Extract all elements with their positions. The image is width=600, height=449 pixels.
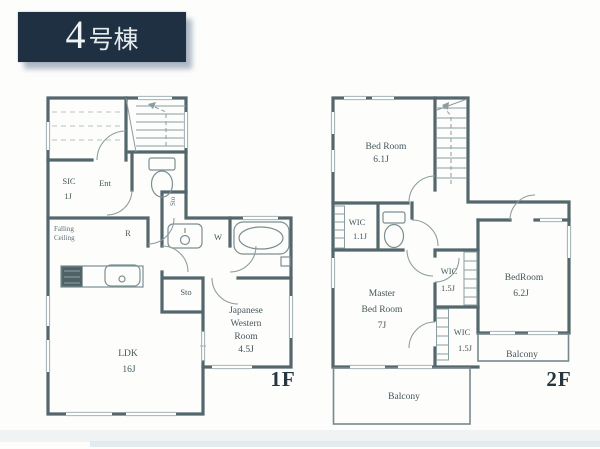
floor2-plan: Bed Room 6.1J WIC 1.1J Master Bed Room 7… [331, 96, 572, 424]
f2-bedroom1-size: 6.1J [373, 155, 389, 165]
f1-jwr-size: 4.5J [238, 345, 254, 355]
f1-entrance-label: Ent [99, 178, 111, 188]
f1-jwr-line1: Japanese [229, 306, 263, 316]
f1-sic-size: 1J [64, 191, 72, 201]
f2-bedroom2-size: 6.2J [513, 289, 529, 299]
f1-ldk-label: LDK [118, 349, 138, 359]
f1-jwr-line3: Room [234, 332, 258, 342]
f2-balcony-main-label: Balcony [388, 392, 420, 402]
f1-falling-ceiling-line2: Ceiling [54, 234, 75, 242]
f1-falling-ceiling-line1: Falling [54, 225, 74, 233]
f1-sliding-door [200, 330, 206, 362]
f2-bedroom2-label: BedRoom [505, 273, 544, 283]
floorplan-canvas: SIC 1J Ent Falling Ceiling R Sto W Sto J… [0, 0, 600, 449]
f2-balcony-side-label: Balcony [506, 350, 538, 360]
f2-wic2-size: 1.5J [441, 283, 456, 293]
f1-ldk-size: 16J [122, 365, 136, 375]
f1-refrigerator-label: R [125, 228, 131, 238]
f2-wic1-size: 1.1J [353, 231, 368, 241]
f1-stairs [126, 98, 186, 152]
porch-hatch [52, 112, 122, 140]
f1-storage-hall-label: Sto [169, 196, 177, 206]
floor2-title: 2F [546, 367, 571, 391]
f2-toilet-icon [383, 212, 405, 248]
f2-master-size: 7J [378, 321, 387, 331]
f1-washroom-label: W [214, 232, 222, 242]
floor1-title: 1F [270, 367, 295, 391]
f2-wic2-label: WIC [441, 266, 458, 276]
f1-sink-icon [168, 224, 202, 248]
floorplan-page: 4 号棟 [0, 0, 600, 449]
f1-jwr-line2: Western [231, 319, 262, 329]
f1-kitchen-counter [61, 265, 143, 287]
f1-sic-label: SIC [62, 176, 76, 186]
floor1-plan: SIC 1J Ent Falling Ceiling R Sto W Sto J… [46, 96, 296, 416]
f2-master-line1: Master [369, 289, 396, 299]
f2-master-line2: Bed Room [362, 305, 404, 315]
f2-bedroom1-label: Bed Room [366, 142, 408, 152]
f1-bathtub-icon [234, 222, 290, 266]
f2-wic1-label: WIC [349, 217, 366, 227]
f2-stairs [437, 99, 467, 184]
f2-wic3-label: WIC [454, 327, 471, 337]
scan-streak-bottom [90, 441, 600, 447]
f1-storage-mid-label: Sto [180, 287, 191, 297]
f2-wic3-size: 1.5J [458, 343, 473, 353]
